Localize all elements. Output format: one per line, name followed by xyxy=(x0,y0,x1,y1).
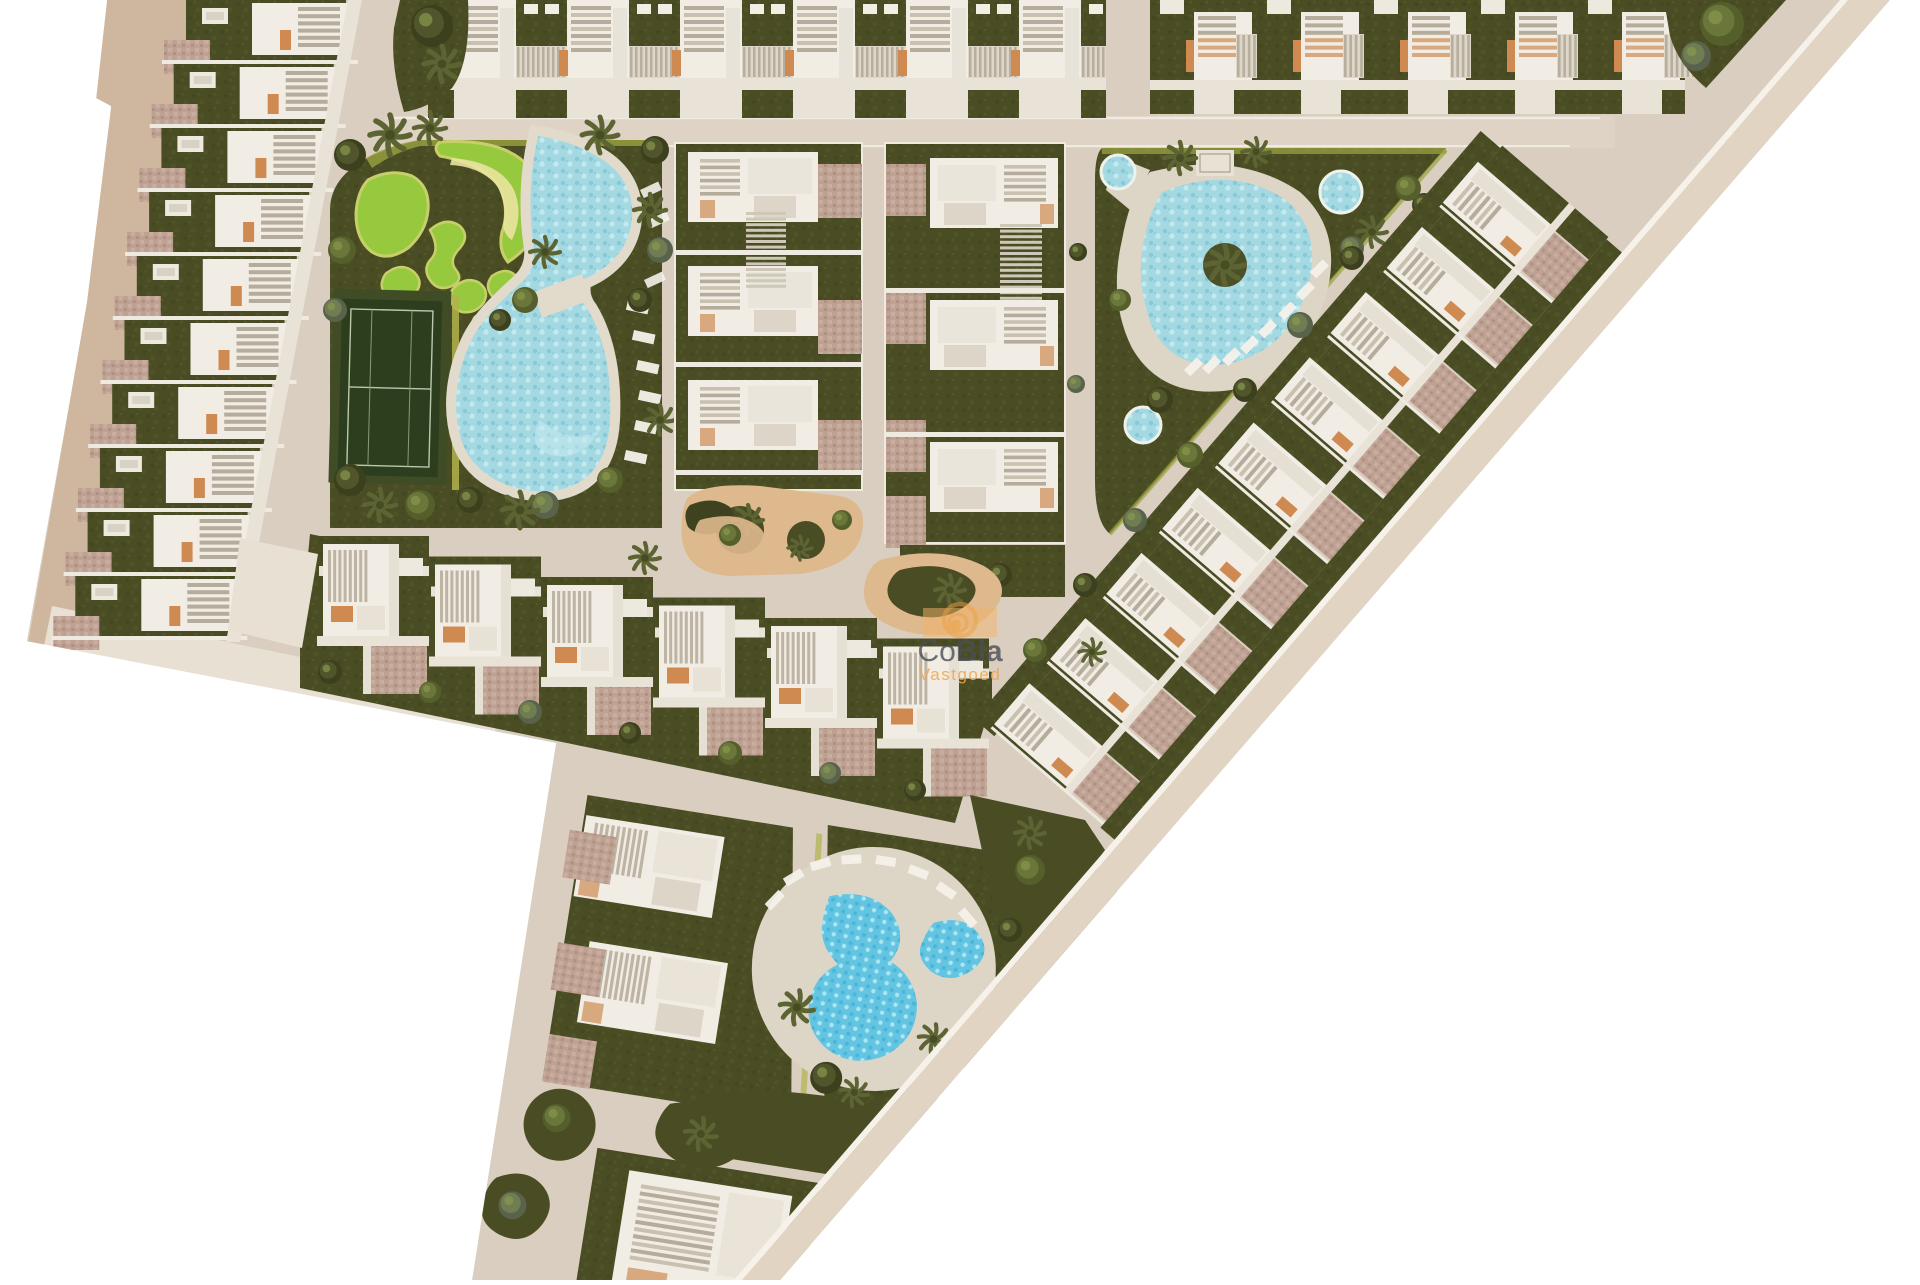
svg-text:Vastgoed: Vastgoed xyxy=(919,665,1002,684)
svg-text:CoBla: CoBla xyxy=(917,635,1002,668)
